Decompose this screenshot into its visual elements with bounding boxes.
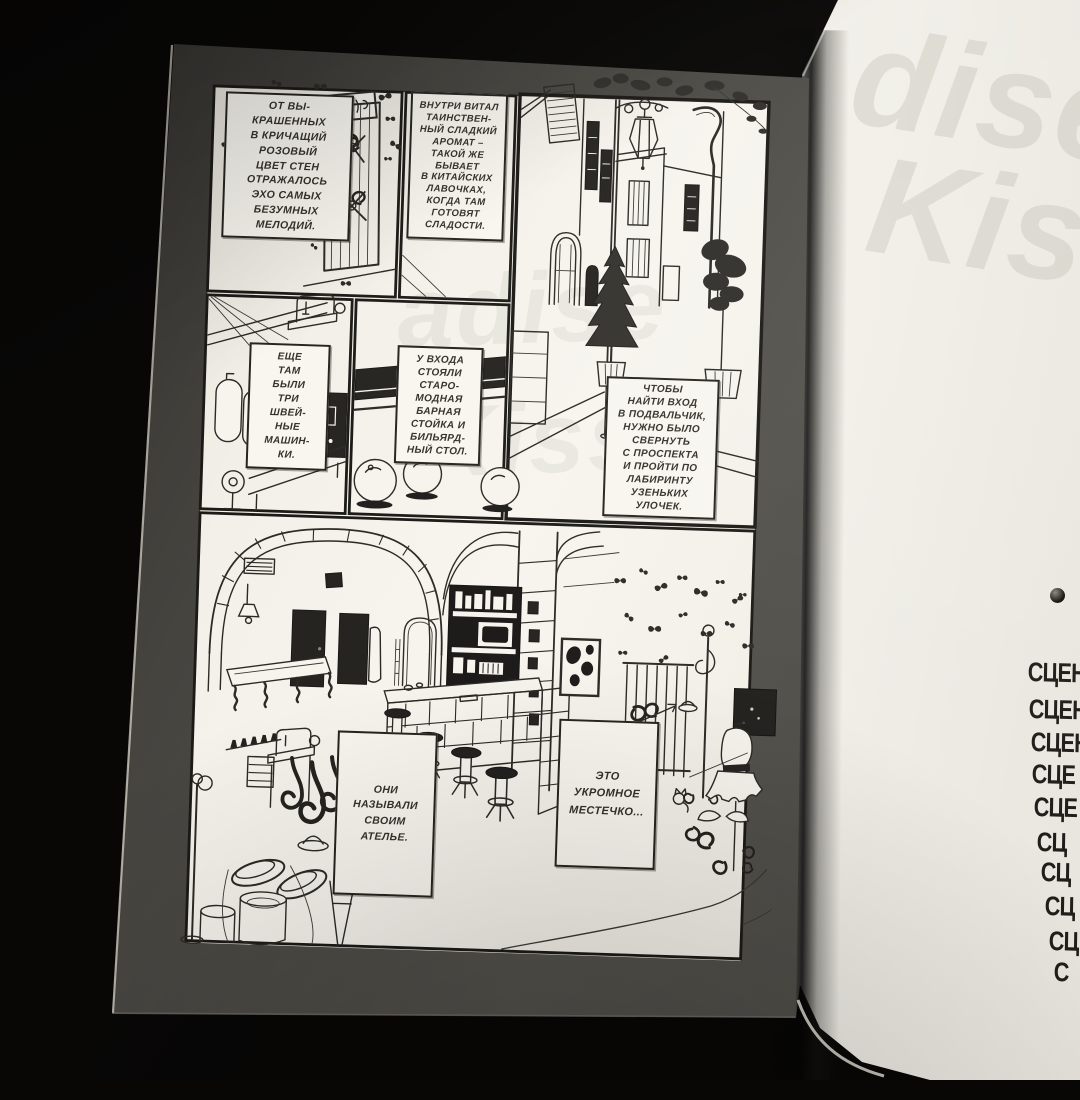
tutu-ruffle bbox=[706, 771, 763, 803]
showthrough-title-line-2: Kiss bbox=[857, 126, 1080, 330]
dark-door bbox=[338, 613, 369, 684]
billiard-ball-icon bbox=[480, 467, 519, 513]
framed-artwork-icon bbox=[560, 639, 600, 696]
round-hat-icon bbox=[298, 836, 328, 851]
hanging-garment bbox=[369, 627, 383, 682]
rack-feet-curls bbox=[683, 810, 758, 876]
wall-corner bbox=[401, 255, 446, 296]
toc-line: СЦЕН bbox=[1027, 657, 1080, 690]
tall-window bbox=[585, 121, 599, 189]
toc-bullet-icon bbox=[1050, 588, 1065, 603]
hat-on-gate-icon bbox=[679, 701, 697, 711]
shutter-window bbox=[544, 84, 580, 143]
building-edge bbox=[579, 99, 584, 235]
floor-curves bbox=[502, 861, 773, 958]
caption-box-6: ОНИ НАЗЫВАЛИ СВОИМ АТЕЛЬЕ. bbox=[333, 730, 438, 897]
billiard-ball-icon bbox=[353, 459, 397, 509]
pendant-lamp-icon bbox=[238, 584, 259, 624]
tall-window bbox=[600, 150, 613, 202]
leafy-tree bbox=[694, 235, 750, 399]
vent-grille-icon bbox=[244, 558, 274, 574]
photo-of-open-manga-book: { "book": { "left_page": { "captions": [… bbox=[0, 0, 1080, 1080]
wall-butterflies bbox=[612, 567, 757, 667]
toc-line: С bbox=[1053, 957, 1068, 988]
ground-line bbox=[304, 266, 397, 289]
arched-mirror-icon bbox=[394, 617, 436, 686]
toc-line: СЦЕН bbox=[1030, 727, 1080, 760]
caption-box-7: ЭТО УКРОМНОЕ МЕСТЕЧКО... bbox=[555, 719, 660, 870]
atelier-interior bbox=[181, 519, 784, 963]
caption-box-2: ВНУТРИ ВИТАЛ ТАИНСТВЕН- НЫЙ СЛАДКИЙ АРОМ… bbox=[406, 91, 508, 241]
caption-box-3: ЕЩЕ ТАМ БЫЛИ ТРИ ШВЕЙ- НЫЕ МАШИН- КИ. bbox=[246, 342, 331, 471]
speaker-icon bbox=[325, 573, 342, 588]
table-edge bbox=[208, 299, 327, 349]
toc-line: СЦ bbox=[1044, 891, 1074, 923]
toc-line: СЦЕН bbox=[1028, 694, 1080, 727]
lamp-bracket-icon bbox=[615, 98, 668, 118]
toc-line: СЦ bbox=[1040, 857, 1070, 889]
caption-box-5: ЧТОБЫ НАЙТИ ВХОД В ПОДВАЛЬЧИК, НУЖНО БЫЛ… bbox=[602, 376, 720, 520]
toc-line: СЦ bbox=[1048, 926, 1078, 958]
toc-line: СЦЕ bbox=[1031, 759, 1075, 791]
bottle-rack bbox=[226, 732, 281, 752]
wing-ornament-icon bbox=[698, 810, 748, 822]
panel-atelier-border bbox=[186, 513, 755, 959]
caption-box-1: ОТ ВЫ- КРАШЕННЫХ В КРИЧАЩИЙ РОЗОВЫЙ ЦВЕТ… bbox=[221, 91, 354, 241]
berets-and-stands bbox=[200, 833, 332, 947]
jar-icon bbox=[200, 905, 235, 942]
wheel-stand-icon bbox=[221, 470, 244, 509]
street-lantern-icon bbox=[629, 117, 659, 171]
arched-window bbox=[549, 232, 581, 305]
hat-stand-cylinder bbox=[239, 891, 287, 945]
toc-line: СЦ bbox=[1036, 827, 1066, 859]
cat-doodle-icon bbox=[673, 789, 689, 812]
shelf-unit bbox=[446, 585, 521, 691]
toc-line: СЦЕ bbox=[1033, 792, 1077, 824]
caption-box-4: У ВХОДА СТОЯЛИ СТАРО- МОДНАЯ БАРНАЯ СТОЙ… bbox=[394, 345, 484, 466]
dress-form-tutu bbox=[704, 722, 765, 872]
